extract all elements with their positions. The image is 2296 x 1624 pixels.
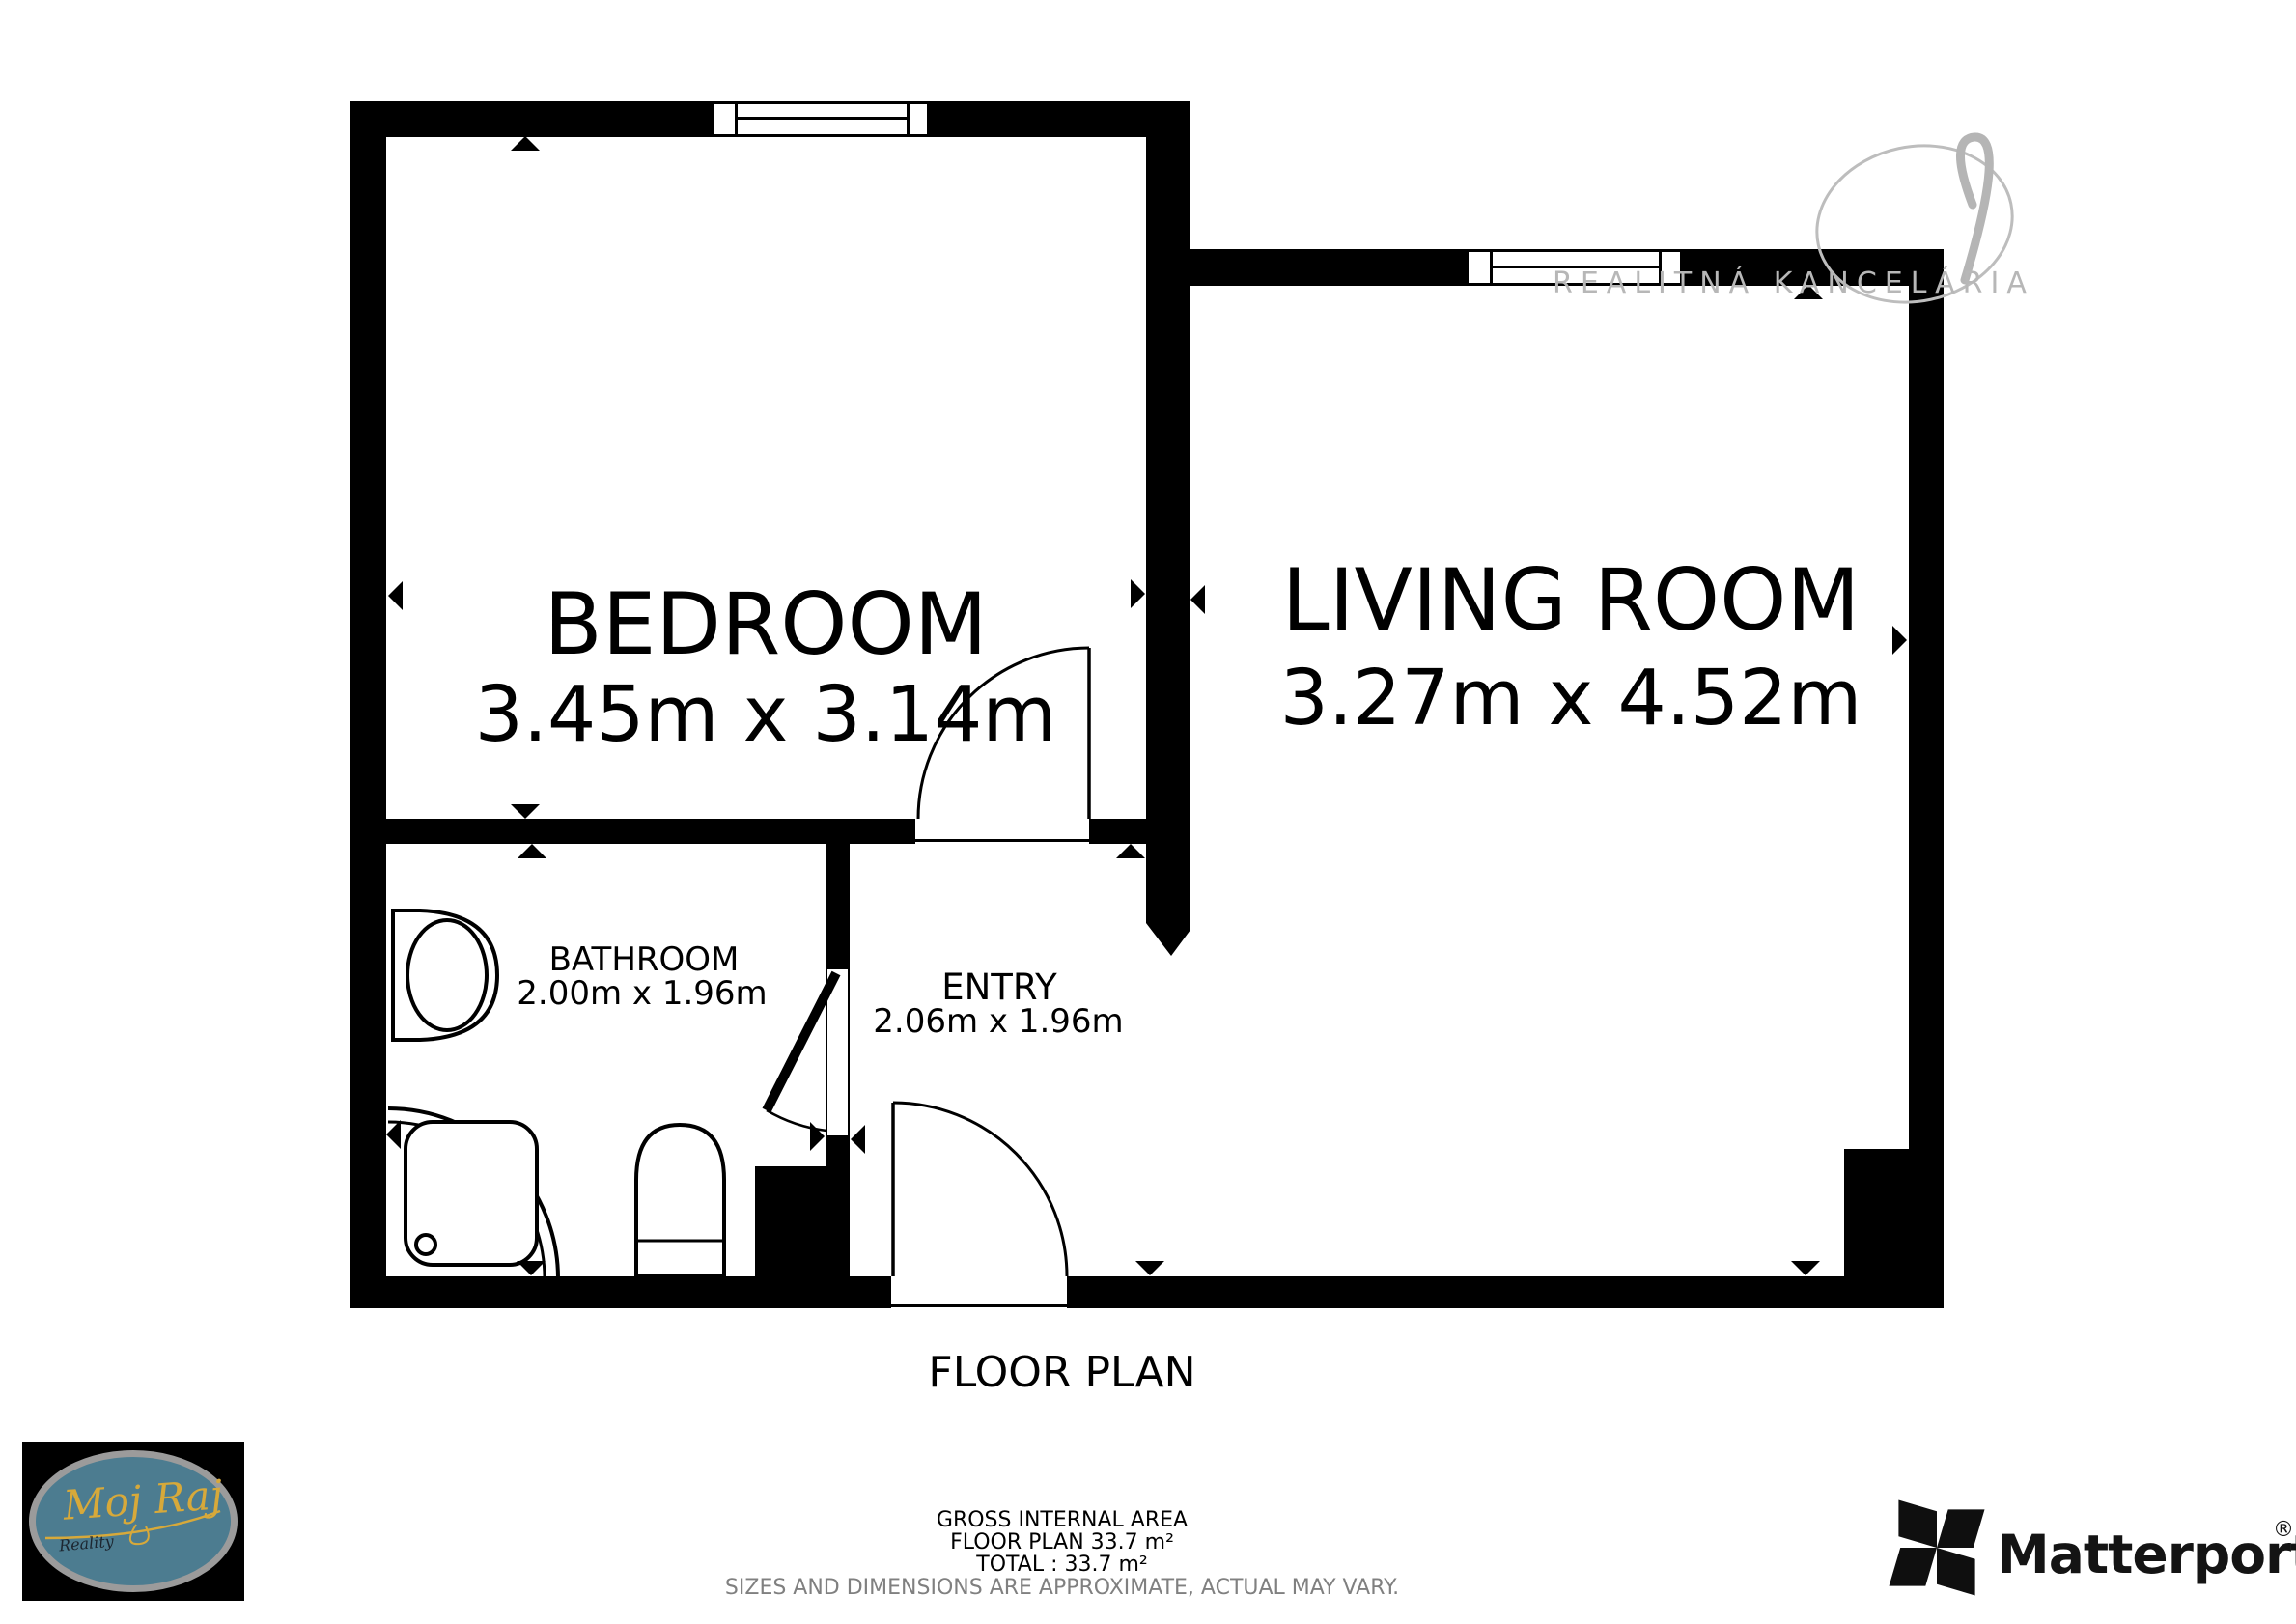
disclaimer-text: SIZES AND DIMENSIONS ARE APPROXIMATE, AC… xyxy=(338,1576,1786,1600)
dimension-arrow-entry-top xyxy=(1116,844,1145,858)
dimension-arrow-bathroom-top xyxy=(518,844,546,858)
shower xyxy=(388,1108,558,1278)
wall-bedroom-bottom-left xyxy=(350,819,915,844)
entry-door xyxy=(893,1103,1067,1276)
shower-enclosure-inner xyxy=(388,1122,545,1278)
dimension-arrow-entry-left xyxy=(851,1125,865,1154)
wall-living-column xyxy=(1844,1149,1909,1276)
shower-enclosure-outer xyxy=(388,1108,558,1278)
matterport-icon xyxy=(1890,1500,1985,1596)
floor-plan-area-value: FLOOR PLAN 33.7 m² xyxy=(338,1530,1786,1554)
wall-bath-block xyxy=(755,1166,850,1276)
sink xyxy=(636,1125,724,1276)
shower-tray xyxy=(406,1122,537,1265)
entry-dimensions: 2.06m x 1.96m xyxy=(805,1005,1191,1040)
living-room-dimensions: 3.27m x 4.52m xyxy=(1194,658,1947,739)
gross-internal-area-label: GROSS INTERNAL AREA xyxy=(338,1508,1786,1532)
total-area-value: TOTAL : 33.7 m² xyxy=(338,1553,1786,1577)
dimension-arrow-bedroom-top xyxy=(511,136,540,151)
watermark-script-stroke xyxy=(1960,137,1989,280)
bedroom-label: BEDROOM xyxy=(389,580,1142,669)
wall-right xyxy=(1909,249,1944,1308)
dimension-arrow-entry-bottom xyxy=(1135,1261,1164,1275)
watermark-text: REALITNÁ KANCELÁRIA xyxy=(1553,266,2034,300)
bathroom-dimensions: 2.00m x 1.96m xyxy=(449,977,835,1012)
window-glass-line xyxy=(735,117,910,120)
door-swing-arc xyxy=(893,1103,1067,1276)
agency-logo: Moj Raj Reality xyxy=(22,1442,244,1601)
wall-bedroom-bottom-right xyxy=(1089,819,1146,844)
living-room-label: LIVING ROOM xyxy=(1194,556,1947,645)
dimension-arrow-bathroom-left xyxy=(386,1120,401,1149)
dimension-arrow-bedroom-bottom xyxy=(511,804,540,819)
bedroom-window xyxy=(712,101,930,137)
matterport-wordmark: Matterport xyxy=(1997,1524,2296,1585)
sink-basin xyxy=(636,1125,724,1276)
dimension-arrow-living-bottom xyxy=(1791,1261,1820,1275)
wall-bottom xyxy=(350,1276,1944,1308)
dimension-arrow-bathroom-bottom xyxy=(517,1261,546,1275)
wall-end-point xyxy=(1146,920,1190,956)
bathroom-label: BATHROOM xyxy=(451,943,837,978)
entry-door-sill xyxy=(891,1304,1067,1307)
registered-mark: ® xyxy=(2273,1518,2294,1542)
bedroom-door-sill xyxy=(915,839,1089,842)
bedroom-dimensions: 3.45m x 3.14m xyxy=(389,675,1142,755)
floor-plan-title: FLOOR PLAN xyxy=(338,1348,1786,1397)
shower-drain xyxy=(416,1235,435,1254)
wall-left xyxy=(350,101,386,1308)
dimension-arrow-bathroom-right xyxy=(810,1122,825,1151)
floor-plan-page: BEDROOM 3.45m x 3.14m LIVING ROOM 3.27m … xyxy=(0,0,2296,1624)
wall-bedroom-living-divider xyxy=(1146,101,1190,922)
